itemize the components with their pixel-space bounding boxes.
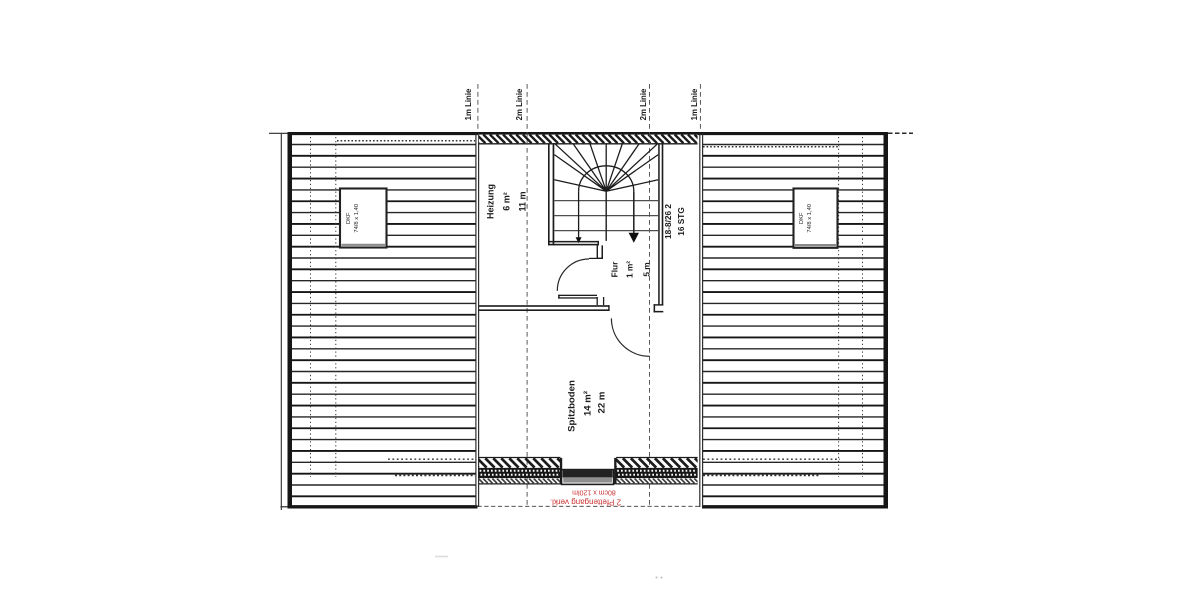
svg-text:2m Linie: 2m Linie	[515, 88, 524, 120]
svg-text:2 Pfettengang verkl.: 2 Pfettengang verkl.	[550, 498, 621, 507]
svg-text:16 STG: 16 STG	[676, 207, 686, 236]
svg-text:1m Linie: 1m Linie	[690, 88, 699, 120]
svg-text:74/8 x 1,40: 74/8 x 1,40	[807, 204, 813, 233]
svg-text:5 m: 5 m	[642, 262, 652, 276]
svg-text:18-8/26 2: 18-8/26 2	[663, 204, 673, 239]
svg-text:DKF: DKF	[799, 212, 805, 224]
svg-text:14 m²: 14 m²	[582, 391, 593, 416]
svg-text:11 m: 11 m	[517, 191, 527, 211]
svg-text:Flur: Flur	[609, 261, 619, 277]
svg-text:6 m²: 6 m²	[501, 192, 511, 211]
svg-text:Heizung: Heizung	[486, 184, 496, 219]
svg-text:22 m: 22 m	[597, 392, 608, 414]
svg-text:74/8 x 1,40: 74/8 x 1,40	[354, 204, 360, 233]
svg-text:DKF: DKF	[346, 212, 352, 224]
svg-text:80cm x 120lm: 80cm x 120lm	[572, 488, 616, 495]
svg-text:1m Linie: 1m Linie	[464, 88, 473, 120]
svg-text:2m Linie: 2m Linie	[639, 88, 648, 120]
svg-text:1 m²: 1 m²	[625, 261, 635, 278]
svg-text:Spitzboden: Spitzboden	[567, 380, 578, 432]
